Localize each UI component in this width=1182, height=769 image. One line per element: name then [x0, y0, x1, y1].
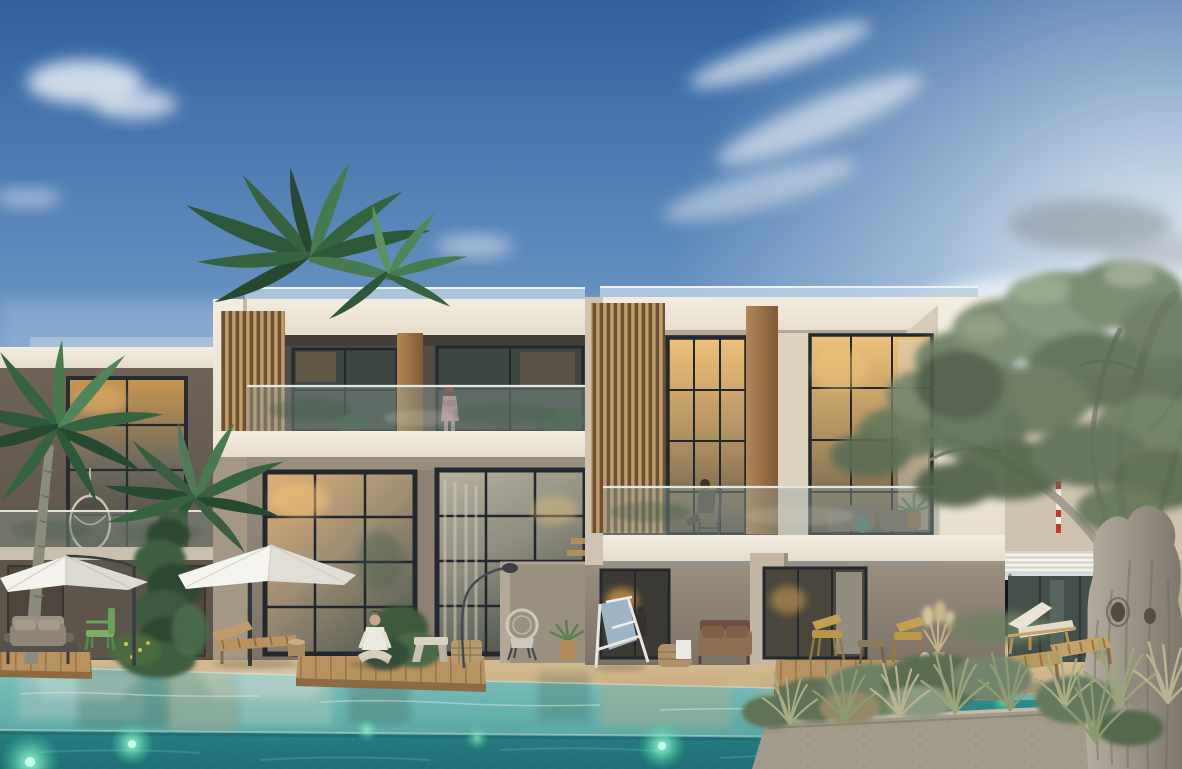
striped-marker-pole	[1056, 481, 1061, 533]
scene-svg	[0, 0, 1182, 769]
rendering-canvas	[0, 0, 1182, 769]
balcony-floor-band	[213, 431, 585, 457]
balcony-glass-railing	[603, 487, 940, 535]
wicker-sofa	[10, 616, 66, 646]
ground-window-right	[764, 568, 866, 658]
platform-left	[0, 652, 92, 679]
wicker-cube	[451, 640, 482, 663]
roof-fascia	[0, 347, 213, 368]
roof-glass-parapet	[600, 287, 978, 298]
stump-side-table	[288, 639, 305, 656]
roof-glass-parapet	[30, 337, 213, 348]
balcony-glass-railing	[247, 386, 585, 431]
balcony-floor-band	[603, 535, 1005, 561]
